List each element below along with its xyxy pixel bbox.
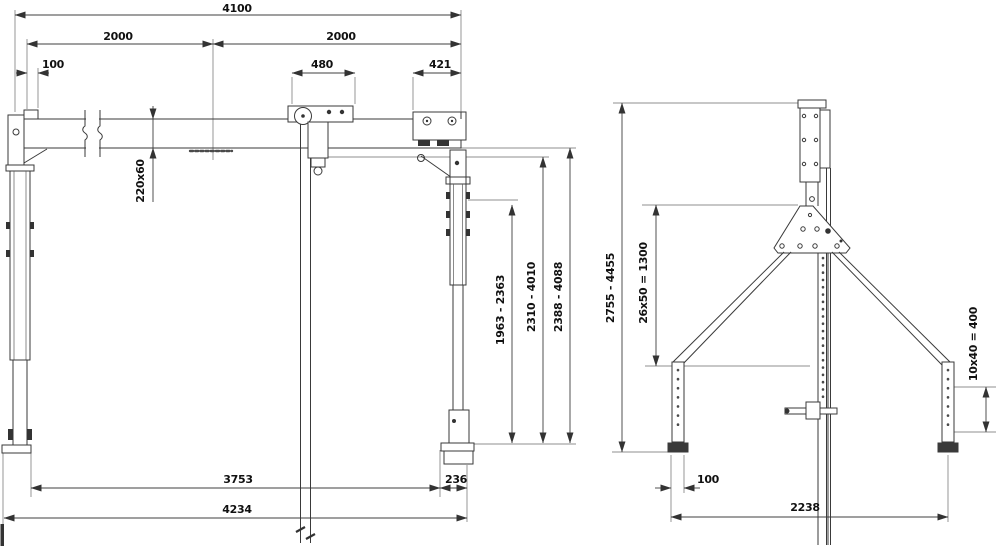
neck-pin [810,197,815,202]
dim-label-421: 421 [429,58,451,71]
trolley-hanger [308,122,328,158]
hook-eye [314,167,322,175]
mast-head [800,108,820,182]
dim-label-4234: 4234 [222,503,252,516]
right-foot-tube [942,362,954,442]
right-leg-inner-tube [453,285,463,410]
left-leg-inner-tube [13,360,27,445]
trolley-assembly [288,106,353,543]
gantry-drawing: 4100 2000 2000 100 480 421 220x60 1963 -… [0,0,1000,548]
right-leg-outer-tube [450,150,466,285]
clamp-bracket [413,112,466,140]
dim-label-1963-2363: 1963 - 2363 [494,275,507,345]
left-foot-pad [668,443,688,452]
left-leg [1,115,48,546]
clamp-knob [785,409,790,414]
dim-label-2000-right: 2000 [326,30,356,43]
dim-label-2755-4455: 2755 - 4455 [604,253,617,323]
rail-beam [15,110,461,157]
dim-label-4100: 4100 [222,2,252,15]
edge-break-mark [1,524,5,546]
hook-block [311,158,325,167]
mast-assembly [798,100,831,545]
dim-label-2310-4010: 2310 - 4010 [525,261,538,332]
front-view: 4100 2000 2000 100 480 421 220x60 1963 -… [1,2,577,546]
dim-label-26x50-1300: 26x50 = 1300 [637,242,650,324]
right-foot-base [444,451,473,464]
strut-right [832,252,943,366]
clamp-body [806,402,820,419]
left-post [8,115,24,165]
beam-end-tab [24,110,38,119]
strut-left [681,252,791,366]
left-gusset [24,149,47,163]
gusset-plate [774,206,850,253]
mast-side-plate [820,110,830,168]
strut-left [673,252,784,362]
right-foot-plate [441,443,474,451]
dim-label-2000-left: 2000 [103,30,133,43]
trolley-bolt [340,110,344,114]
right-foot-pad [938,443,958,452]
mast-top-cap [798,100,826,108]
dim-label-480: 480 [311,58,334,71]
technical-drawing-canvas: 4100 2000 2000 100 480 421 220x60 1963 -… [0,0,1000,548]
right-foot-bracket [449,410,469,443]
dim-label-2388-4088: 2388 - 4088 [552,262,565,332]
front-dimension-lines [4,15,570,518]
strut-right [839,252,950,362]
trolley-bolt [327,110,331,114]
front-dimension-labels: 4100 2000 2000 100 480 421 220x60 1963 -… [42,2,565,516]
dim-label-10x40-400: 10x40 = 400 [967,306,980,381]
left-leg-outer-tube [10,171,30,360]
left-foot-tube [672,362,684,442]
dim-label-100: 100 [42,58,65,71]
dim-label-236: 236 [445,473,468,486]
front-extension-lines [3,10,576,527]
leg-gusset [673,206,950,366]
dim-label-2238: 2238 [790,501,819,514]
winch-clamp [785,402,838,419]
side-view: 2755 - 4455 26x50 = 1300 10x40 = 400 100… [604,100,996,545]
left-foot-plate [2,445,31,453]
right-leg [413,112,474,464]
dim-label-220x60: 220x60 [134,159,147,203]
dim-label-3753: 3753 [223,473,252,486]
side-dimension-labels: 2755 - 4455 26x50 = 1300 10x40 = 400 100… [604,242,980,514]
dim-label-100-side: 100 [697,473,720,486]
left-leg-flange [6,165,34,171]
